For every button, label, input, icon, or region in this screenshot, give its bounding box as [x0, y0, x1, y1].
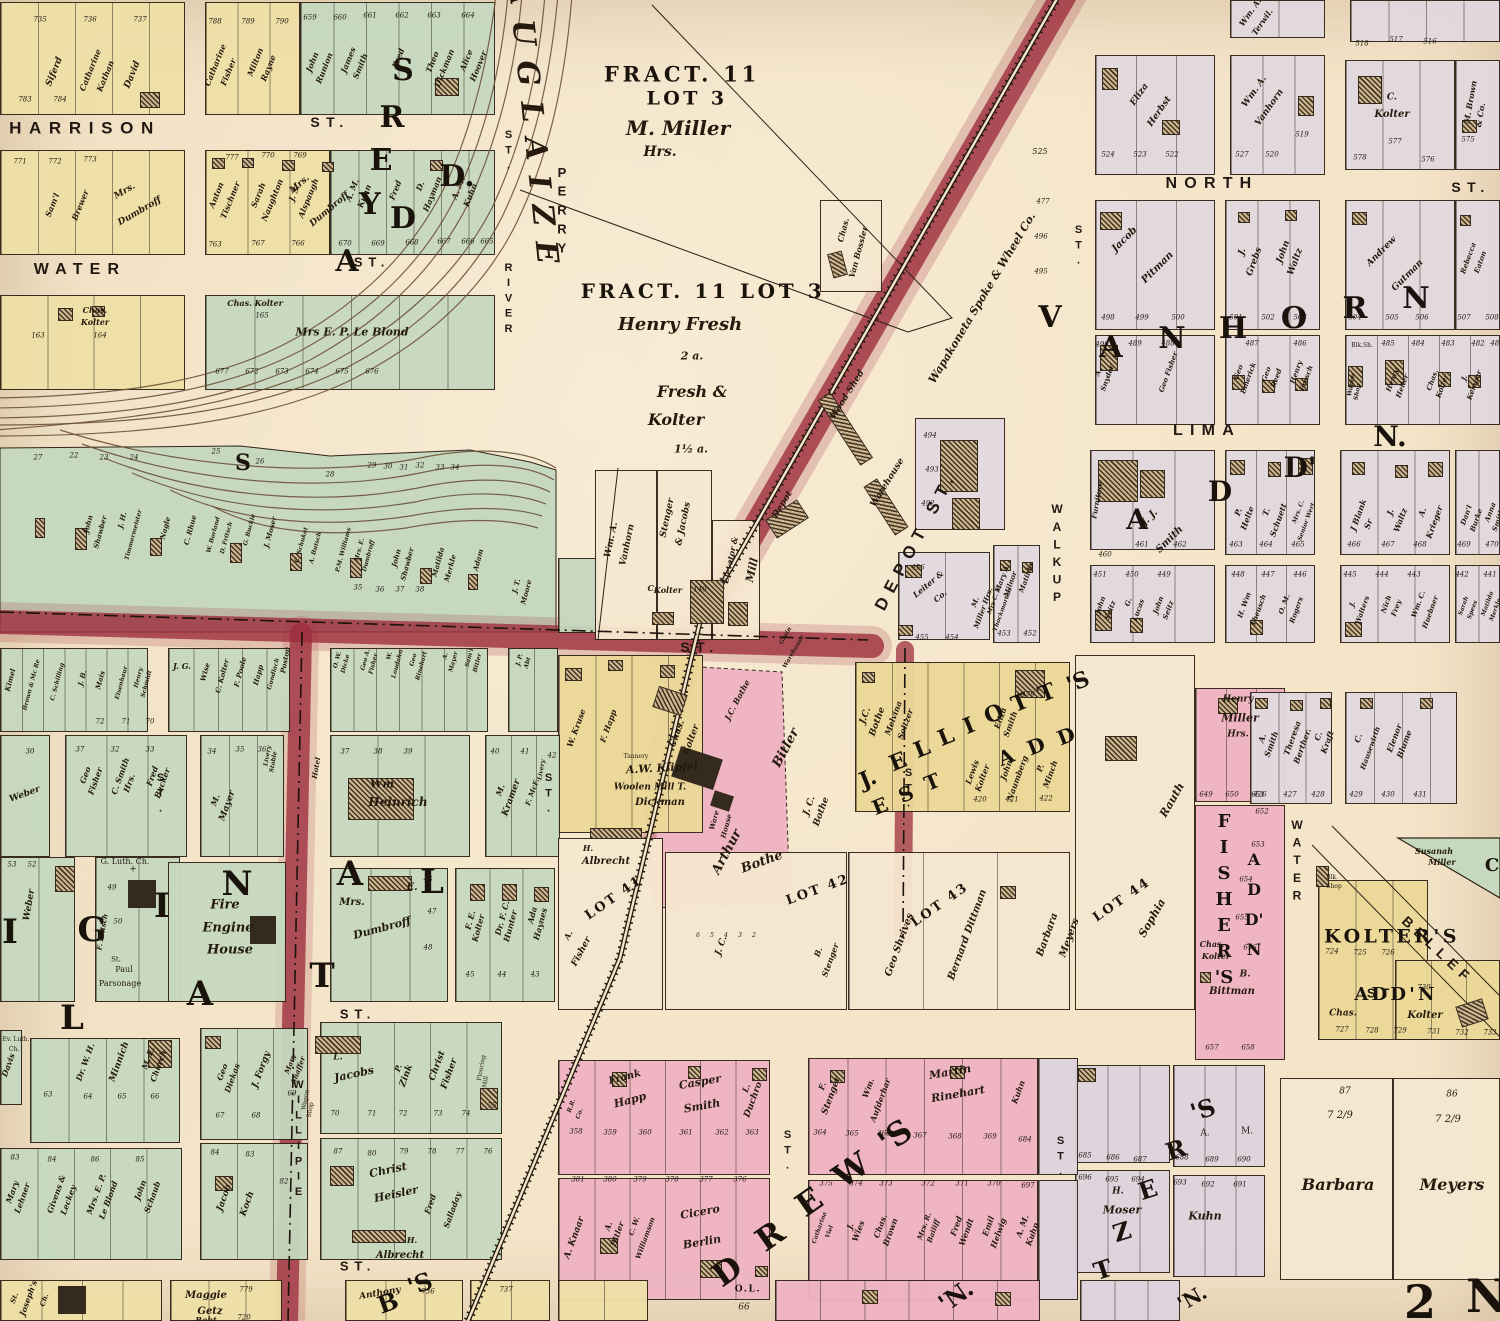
- lot-number: 48: [424, 945, 433, 952]
- owner-label: Meyers: [1420, 1177, 1485, 1193]
- lot-number: 33: [436, 465, 445, 472]
- lot-number: 372: [921, 1181, 934, 1188]
- street-label: LIMA: [1173, 423, 1241, 439]
- city-block: [665, 852, 847, 1010]
- building-footprint: [242, 158, 254, 168]
- owner-label: Nagle: [159, 516, 172, 540]
- lot-number: 737: [133, 17, 146, 24]
- owner-label: Kolter: [1202, 952, 1230, 960]
- lot-number: 71: [368, 1111, 377, 1118]
- building-footprint: [58, 1286, 86, 1314]
- owner-label: Henry: [1223, 696, 1254, 705]
- building-footprint: [1255, 698, 1268, 709]
- city-block: [205, 295, 495, 390]
- lot-number: 446: [1293, 572, 1306, 579]
- building-footprint: [1352, 212, 1367, 225]
- lot-number: 4: [724, 933, 728, 939]
- owner-label: A. Butsch: [309, 532, 323, 565]
- lot-number: 725: [1353, 950, 1366, 957]
- lot-number: 31: [400, 465, 409, 472]
- lot-number: 68: [252, 1113, 261, 1120]
- owner-label: Hrs.: [1227, 731, 1248, 740]
- owner-label: B.: [1240, 971, 1251, 980]
- lot-number: 502: [1261, 315, 1274, 322]
- lot-number: 667: [437, 239, 450, 246]
- lot-number: 505: [1385, 315, 1398, 322]
- lot-number: 481: [1490, 341, 1500, 348]
- owner-label: Albrecht: [376, 1251, 424, 1261]
- building-footprint: [1298, 96, 1314, 116]
- lot-number: 450: [1125, 572, 1138, 579]
- lot-number: 72: [96, 719, 105, 726]
- owner-label: A.: [1200, 1130, 1209, 1139]
- city-block: [1173, 1175, 1265, 1277]
- owner-label: Fire: [210, 899, 239, 912]
- lot-number: 369: [983, 1134, 996, 1141]
- owner-label: Chas.: [1200, 940, 1225, 948]
- building-footprint: [1360, 698, 1373, 709]
- addition-letter: I: [1220, 839, 1228, 857]
- lot-number: 27: [34, 455, 43, 462]
- building-footprint: [1200, 972, 1211, 983]
- lot-number: 735: [33, 17, 46, 24]
- building-footprint: [1428, 462, 1443, 477]
- lot-number: 70: [146, 719, 155, 726]
- lot-number: 576: [1421, 157, 1434, 164]
- lot-number: 720: [237, 1315, 250, 1321]
- building-footprint: [1162, 120, 1180, 135]
- lot-number: 771: [13, 159, 26, 166]
- lot-number: 477: [1036, 199, 1049, 206]
- owner-label: Chas.: [1329, 1010, 1357, 1019]
- lot-number: 527: [1235, 152, 1248, 159]
- area-label: LOT 3: [647, 90, 728, 109]
- owner-label: Kolter: [654, 586, 682, 594]
- lot-number: 461: [1135, 542, 1148, 549]
- lot-number: 668: [405, 240, 418, 247]
- lot-number: 575: [1461, 137, 1474, 144]
- street-label: WATER: [34, 262, 127, 278]
- building-footprint: [1230, 460, 1245, 475]
- lot-number: 42: [548, 753, 557, 760]
- lot-number: 770: [261, 153, 274, 160]
- lot-number: 6: [696, 933, 700, 939]
- building-footprint: [1268, 462, 1281, 477]
- lot-number: 489: [1128, 341, 1141, 348]
- lot-number: 673: [275, 369, 288, 376]
- lot-number: 45: [466, 972, 475, 979]
- owner-label: Kolter: [1374, 110, 1409, 120]
- owner-label: Adam: [472, 548, 485, 571]
- owner-label: Engine: [202, 922, 253, 935]
- lot-number: 375: [819, 1181, 832, 1188]
- lot-number: 358: [569, 1129, 582, 1136]
- lot-number: 727: [1335, 1027, 1348, 1034]
- lot-number: 380: [603, 1177, 616, 1184]
- building-footprint: [502, 884, 517, 901]
- street-label: HARRISON: [9, 120, 161, 137]
- lot-number: 33: [146, 747, 155, 754]
- lot-number: 498: [1101, 315, 1114, 322]
- lot-number: 496: [1034, 234, 1047, 241]
- lot-number: 790: [275, 19, 288, 26]
- building-footprint: [862, 672, 875, 683]
- lot-number: 486: [1293, 341, 1306, 348]
- building-footprint: [282, 160, 295, 171]
- addition-letter: H: [1215, 891, 1232, 909]
- lot-number: 67: [216, 1113, 225, 1120]
- lot-number: 666: [461, 239, 474, 246]
- lot-number: 784: [53, 97, 66, 104]
- building-footprint: [1290, 700, 1303, 711]
- lot-number: 729: [1393, 1028, 1406, 1035]
- lot-number: 366: [877, 1131, 890, 1138]
- owner-label: Hrs.: [643, 145, 676, 159]
- city-block: [820, 200, 882, 292]
- lot-number: 522: [1165, 152, 1178, 159]
- lot-number: 689: [1205, 1157, 1218, 1164]
- lot-number: 733: [1483, 1030, 1496, 1037]
- addition-letter: E: [370, 146, 393, 176]
- lot-number: 79: [400, 1149, 409, 1156]
- lot-number: 690: [1237, 1157, 1250, 1164]
- building-footprint: [755, 1266, 768, 1277]
- owner-label: Ware: [708, 809, 720, 830]
- building-footprint: [330, 1166, 354, 1186]
- lot-number: 482: [1471, 341, 1484, 348]
- lot-number: 500: [1171, 315, 1184, 322]
- lot-number: 695: [1105, 1177, 1118, 1184]
- lot-number: 577: [1388, 139, 1401, 146]
- lot-number: 73: [434, 1111, 443, 1118]
- lot-number: 32: [111, 747, 120, 754]
- owner-label: H.: [407, 1236, 417, 1244]
- lot-number: 676: [365, 369, 378, 376]
- lot-number: 7 2/9: [1327, 1111, 1353, 1121]
- lot-number: 507: [1457, 315, 1470, 322]
- lot-number: 732: [1455, 1030, 1468, 1037]
- addition-letter: D': [1284, 454, 1317, 482]
- lot-number: 34: [208, 749, 217, 756]
- lot-number: 462: [1173, 542, 1186, 549]
- lot-number: 503: [1293, 315, 1306, 322]
- owner-label: Kolter: [1407, 1011, 1442, 1021]
- building-footprint: [212, 158, 225, 169]
- lot-number: 428: [1311, 792, 1324, 799]
- lot-number: 37: [76, 747, 85, 754]
- owner-label: Miller: [1428, 858, 1455, 866]
- owner-label: Chas. Kolter: [227, 299, 283, 307]
- lot-number: 769: [293, 153, 306, 160]
- owner-label: Bitler: [770, 726, 801, 769]
- lot-number: 443: [1407, 572, 1420, 579]
- building-footprint: [1420, 698, 1433, 709]
- street-label: ST.: [354, 256, 390, 269]
- building-footprint: [35, 518, 45, 538]
- owner-label: Barbara: [1302, 1177, 1375, 1193]
- owner-label: Shop: [1326, 884, 1341, 890]
- building-footprint: [565, 668, 582, 681]
- lot-number: 493: [925, 467, 938, 474]
- lot-number: 488: [1161, 341, 1174, 348]
- owner-label: Bittman: [1209, 987, 1255, 997]
- building-footprint: [898, 625, 913, 636]
- street-label: ST.: [1073, 224, 1084, 270]
- owner-label: Albrecht: [582, 857, 630, 867]
- building-footprint: [230, 543, 242, 563]
- building-footprint: [1460, 215, 1471, 226]
- lot-number: 44: [498, 972, 507, 979]
- lot-number: 431: [1413, 792, 1426, 799]
- owner-label: G.: [1123, 597, 1132, 607]
- lot-number: 449: [1157, 572, 1170, 579]
- addition-letter: N.: [1373, 423, 1407, 451]
- owner-label: St.: [111, 957, 121, 964]
- city-block: [558, 1280, 648, 1321]
- building-footprint: [1140, 470, 1165, 498]
- lot-number: 420: [973, 797, 986, 804]
- lot-number: 524: [1101, 152, 1114, 159]
- lot-number: 724: [1325, 949, 1338, 956]
- lot-number: 34: [451, 465, 460, 472]
- owner-label: G. Luth. Ch.: [101, 858, 150, 866]
- lot-number: 777: [225, 155, 238, 162]
- lot-number: 455: [915, 635, 928, 642]
- street-label: ST.: [1451, 180, 1490, 194]
- lot-number: 87: [1339, 1088, 1350, 1097]
- addition-letter: A: [187, 977, 213, 1011]
- building-footprint: [128, 880, 156, 908]
- lot-number: 688: [1175, 1155, 1188, 1162]
- addition-letter: S: [235, 452, 251, 474]
- lot-number: 365: [845, 1131, 858, 1138]
- area-label: FRACT. 11: [604, 64, 760, 85]
- lot-number: 38: [416, 587, 425, 594]
- lot-number: 30: [26, 749, 35, 756]
- owner-label: Blk.: [1326, 875, 1338, 881]
- lot-number: 465: [1291, 542, 1304, 549]
- owner-label: Wm: [370, 779, 394, 790]
- street-label: ST.: [1055, 1135, 1066, 1181]
- addition-letter: L: [60, 1001, 84, 1035]
- lot-number: 495: [1034, 269, 1047, 276]
- lot-number: 653: [1251, 842, 1264, 849]
- lot-number: 426: [1253, 792, 1266, 799]
- lot-number: 36: [376, 587, 385, 594]
- owner-label: J.C. Bothe: [723, 678, 751, 721]
- building-footprint: [315, 1036, 361, 1054]
- owner-label: C. Rhue: [183, 514, 198, 546]
- building-footprint: [710, 790, 734, 811]
- lot-number: 43: [531, 972, 540, 979]
- city-block: [1195, 805, 1285, 1060]
- lot-number: 763: [208, 242, 221, 249]
- lot-number: 773: [83, 157, 96, 164]
- street-label: ST.: [543, 772, 554, 818]
- building-footprint: [205, 1036, 221, 1049]
- lot-number: 76: [484, 1149, 493, 1156]
- city-block: [1350, 0, 1500, 42]
- lot-number: 164: [93, 333, 106, 340]
- building-footprint: [590, 828, 642, 839]
- lot-number: 523: [1133, 152, 1146, 159]
- lot-number: 650: [1225, 792, 1238, 799]
- addition-letter: C: [1485, 857, 1499, 875]
- owner-label: E.: [406, 883, 417, 893]
- street-label: ST.: [680, 640, 719, 654]
- lot-number: 447: [1261, 572, 1274, 579]
- lot-number: 35: [236, 747, 245, 754]
- area-label: KOLTER'S: [1324, 928, 1460, 947]
- city-block: [1075, 655, 1195, 1010]
- addition-letter: D: [1208, 478, 1232, 506]
- lot-number: 444: [1375, 572, 1388, 579]
- lot-number: 363: [745, 1130, 758, 1137]
- lot-number: 730: [1417, 985, 1430, 992]
- lot-number: 783: [18, 97, 31, 104]
- lot-number: 483: [1441, 341, 1454, 348]
- owner-label: Ev. Luth.: [3, 1037, 30, 1043]
- addition-letter: D: [390, 204, 416, 234]
- lot-number: 5: [710, 933, 714, 939]
- lot-number: 23: [100, 455, 109, 462]
- lot-number: 519: [1295, 132, 1308, 139]
- building-footprint: [1000, 886, 1016, 899]
- building-footprint: [728, 602, 748, 626]
- lot-number: 74: [462, 1111, 471, 1118]
- lot-number: 37: [396, 587, 405, 594]
- lot-number: 696: [1078, 1175, 1091, 1182]
- lot-number: 654: [1239, 877, 1252, 884]
- street-label: NORTH: [1166, 176, 1259, 192]
- lot-number: 665: [480, 239, 493, 246]
- lot-number: 453: [997, 631, 1010, 638]
- owner-label: Kuhn: [1188, 1211, 1221, 1222]
- owner-label: H.: [1112, 1188, 1124, 1197]
- lot-number: 516: [1423, 39, 1436, 46]
- owner-label: Shawber: [92, 515, 107, 549]
- building-footprint: [752, 1068, 767, 1081]
- lot-number: 65: [118, 1094, 127, 1101]
- owner-label: G. Buckle: [243, 514, 257, 547]
- building-footprint: [250, 916, 276, 944]
- street-label: WATER: [1291, 818, 1303, 906]
- lot-number: 726: [1381, 950, 1394, 957]
- lot-number: 50: [114, 919, 123, 926]
- lot-number: 469: [1457, 542, 1470, 549]
- plat-map-canvas[interactable]: HARRISONST.WATERST.NORTHST.LIMAST.ST.ST.…: [0, 0, 1500, 1321]
- lot-number: 26: [256, 459, 265, 466]
- owner-label: 2 a.: [681, 351, 703, 362]
- owner-label: Moser: [1103, 1205, 1142, 1216]
- lot-number: 508: [1485, 315, 1498, 322]
- building-footprint: [1285, 210, 1297, 221]
- lot-number: 441: [1483, 572, 1496, 579]
- lot-number: 63: [44, 1092, 53, 1099]
- building-footprint: [652, 612, 674, 625]
- owner-label: J. H.: [116, 511, 127, 529]
- addition-letter: V: [1038, 303, 1061, 333]
- owner-label: Mrs.: [339, 898, 364, 908]
- lot-number: 506: [1415, 315, 1428, 322]
- owner-label: M. Miller: [626, 118, 730, 138]
- lot-number: 686: [1106, 1155, 1119, 1162]
- lot-number: 767: [251, 241, 264, 248]
- lot-number: 86: [1446, 1091, 1457, 1100]
- lot-number: 370: [987, 1181, 1000, 1188]
- addition-letter: 2: [1404, 1279, 1436, 1321]
- lot-number: 25: [212, 449, 221, 456]
- lot-number: 83: [11, 1155, 20, 1162]
- lot-number: 40: [491, 749, 500, 756]
- lot-number: 464: [1259, 542, 1272, 549]
- lot-number: 504: [1348, 315, 1361, 322]
- building-footprint: [368, 876, 412, 891]
- building-footprint: [470, 884, 485, 901]
- lot-number: 66: [151, 1094, 160, 1101]
- lot-number: 672: [245, 369, 258, 376]
- lot-number: 520: [1265, 152, 1278, 159]
- lot-number: 456: [911, 565, 924, 572]
- lot-number: 736: [421, 1289, 434, 1296]
- addition-letter: A: [335, 247, 358, 277]
- lot-number: 52: [28, 862, 37, 869]
- lot-number: 687: [1133, 1157, 1146, 1164]
- lot-number: 75: [488, 1103, 497, 1110]
- building-footprint: [952, 498, 980, 530]
- owner-label: Paul: [115, 966, 133, 974]
- lot-number: 661: [363, 13, 376, 20]
- lot-number: 140: [693, 587, 706, 594]
- addition-letter: E: [1217, 917, 1231, 935]
- lot-number: 445: [1343, 572, 1356, 579]
- street-label: RIVER: [503, 262, 514, 339]
- owner-label: Tannery: [624, 754, 649, 760]
- street-label: ST.: [503, 129, 514, 175]
- lot-number: 377: [699, 1177, 712, 1184]
- lot-number: 452: [1023, 631, 1036, 638]
- owner-label: Dickman: [635, 798, 685, 808]
- lot-number: 525: [1032, 148, 1047, 156]
- owner-label: Grain: [779, 626, 794, 645]
- addition-letter: T: [309, 959, 334, 993]
- owner-label: J. Moser: [262, 516, 277, 549]
- area-label: O.L.: [735, 1286, 761, 1295]
- lot-number: 78: [428, 1149, 437, 1156]
- lot-number: 378: [665, 1177, 678, 1184]
- lot-number: 30: [384, 464, 393, 471]
- lot-number: 2: [752, 933, 756, 939]
- owner-label: Wood Shed: [829, 369, 866, 421]
- lot-number: 779: [239, 1287, 252, 1294]
- lot-number: 736: [83, 17, 96, 24]
- lot-number: 669: [371, 241, 384, 248]
- lot-number: 442: [1455, 572, 1468, 579]
- addition-letter: A: [337, 857, 363, 891]
- lot-number: 83: [246, 1152, 255, 1159]
- addition-letter: F: [1218, 813, 1231, 831]
- lot-number: 37: [341, 749, 350, 756]
- building-footprint: [608, 660, 623, 671]
- lot-number: 371: [955, 1181, 968, 1188]
- lot-number: 376: [733, 1177, 746, 1184]
- building-footprint: [55, 866, 75, 892]
- lot-number: 429: [1349, 792, 1362, 799]
- building-footprint: [1320, 698, 1331, 709]
- building-footprint: [1358, 76, 1382, 104]
- city-block: [558, 1060, 770, 1175]
- lot-number: 578: [1353, 155, 1366, 162]
